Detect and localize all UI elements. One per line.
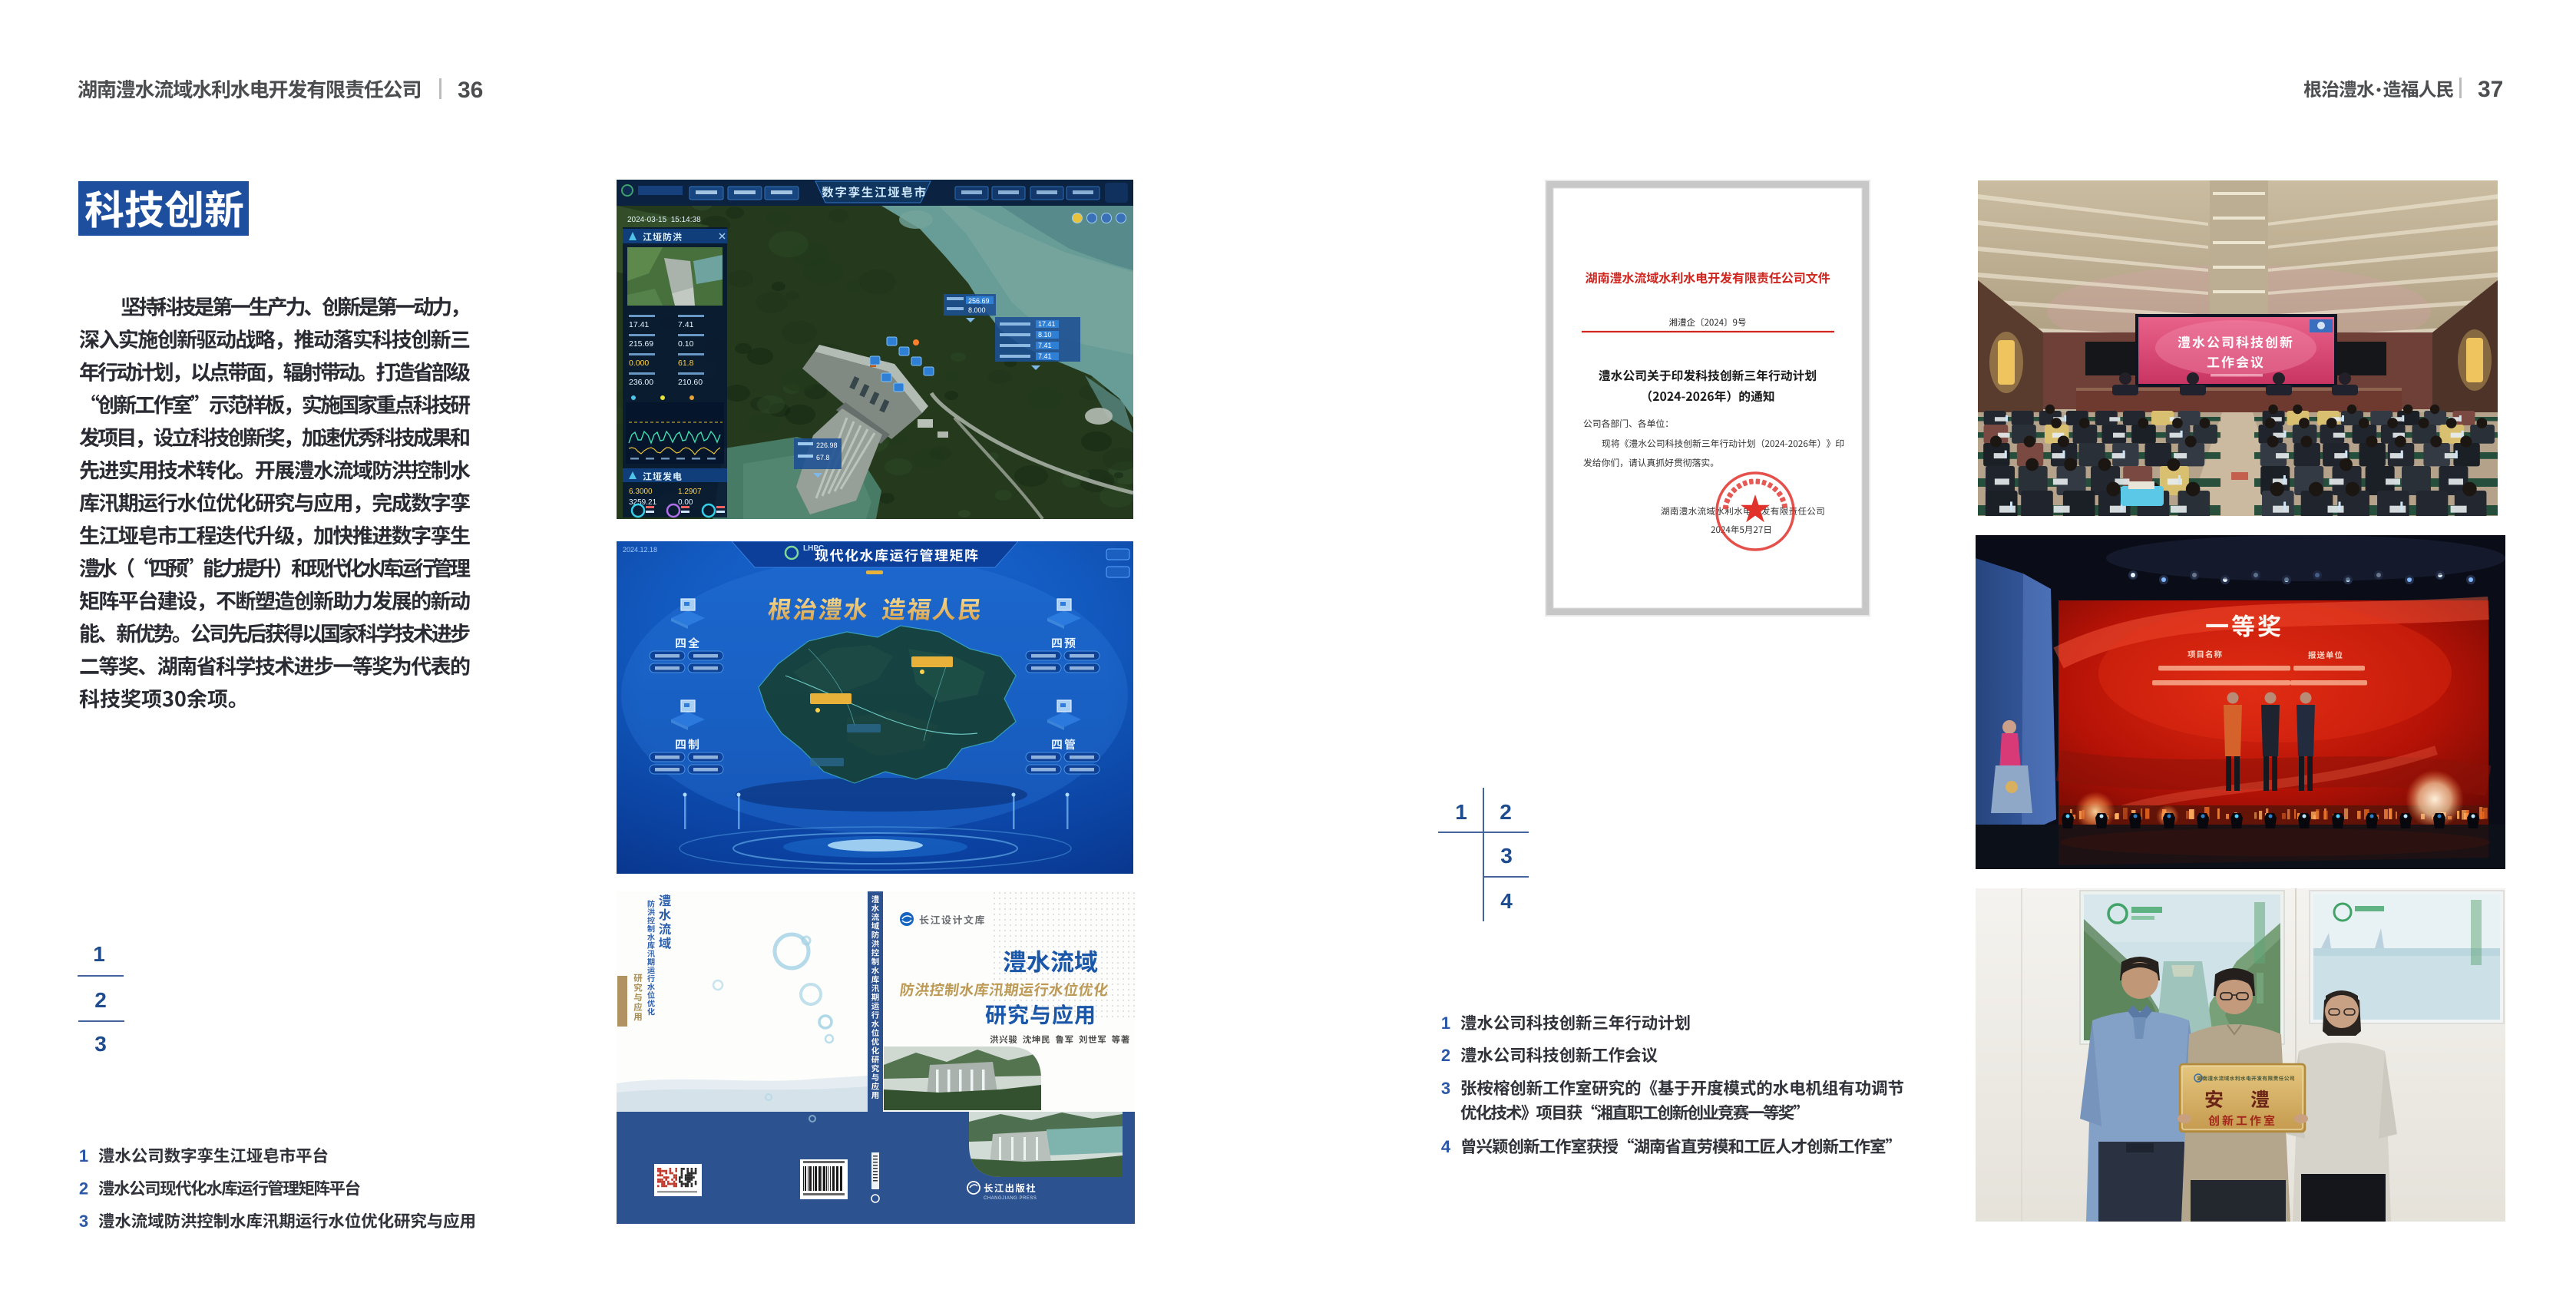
- svg-text:2024.12.18: 2024.12.18: [623, 546, 657, 554]
- svg-text:3: 3: [1441, 1079, 1450, 1098]
- svg-text:3: 3: [1500, 844, 1513, 868]
- svg-text:67.8: 67.8: [816, 454, 830, 461]
- svg-text:2: 2: [94, 988, 107, 1012]
- svg-text:8.000: 8.000: [968, 306, 986, 314]
- svg-text:17.41: 17.41: [1038, 320, 1056, 328]
- svg-text:0.000: 0.000: [629, 359, 649, 368]
- svg-text:36: 36: [458, 78, 483, 103]
- svg-text:210.60: 210.60: [678, 378, 703, 387]
- svg-text:2: 2: [1441, 1046, 1450, 1065]
- svg-text:7.41: 7.41: [678, 320, 694, 329]
- svg-text:2024-03-15 15:14:38: 2024-03-15 15:14:38: [627, 216, 701, 224]
- svg-text:1: 1: [1441, 1013, 1450, 1033]
- svg-text:7.41: 7.41: [1038, 352, 1052, 360]
- svg-text:8.10: 8.10: [1038, 331, 1052, 339]
- svg-text:226.98: 226.98: [816, 441, 838, 449]
- svg-text:17.41: 17.41: [629, 320, 649, 329]
- svg-text:1: 1: [79, 1146, 88, 1165]
- svg-text:4: 4: [1441, 1137, 1451, 1156]
- svg-text:0.10: 0.10: [678, 339, 694, 349]
- svg-text:215.69: 215.69: [629, 339, 653, 349]
- svg-text:256.69: 256.69: [968, 297, 990, 305]
- svg-text:3: 3: [79, 1212, 88, 1231]
- svg-text:1: 1: [93, 942, 105, 966]
- svg-text:7.41: 7.41: [1038, 342, 1052, 349]
- svg-text:6.3000: 6.3000: [629, 488, 653, 496]
- svg-text:0.00: 0.00: [678, 498, 693, 507]
- svg-text:61.8: 61.8: [678, 359, 694, 368]
- svg-text:1.2907: 1.2907: [678, 488, 702, 496]
- svg-text:2: 2: [79, 1179, 88, 1199]
- svg-text:4: 4: [1500, 889, 1513, 913]
- svg-text:1: 1: [1455, 800, 1467, 824]
- svg-text:236.00: 236.00: [629, 378, 653, 387]
- svg-text:CHANGJIANG PRESS: CHANGJIANG PRESS: [984, 1196, 1037, 1201]
- svg-text:37: 37: [2478, 77, 2503, 102]
- svg-text:3: 3: [94, 1032, 107, 1056]
- svg-text:2: 2: [1500, 800, 1512, 824]
